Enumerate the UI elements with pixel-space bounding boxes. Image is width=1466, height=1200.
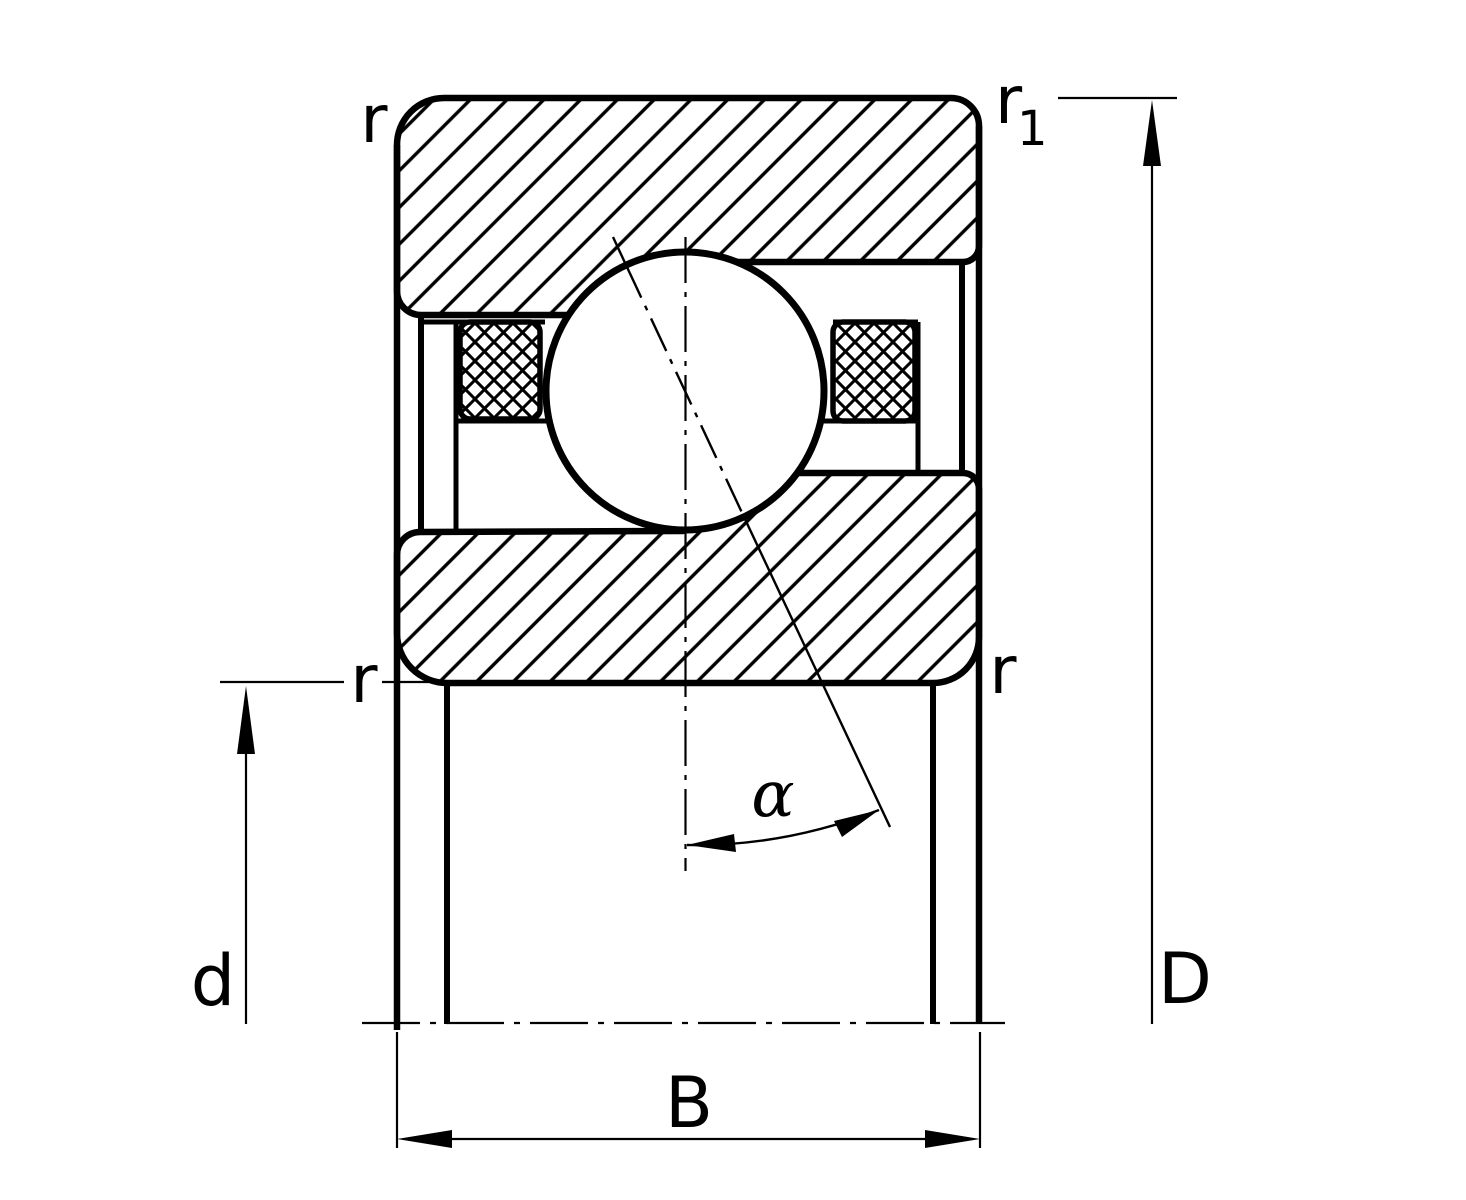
bore-diameter-arrow (237, 686, 255, 754)
cage-section-right (833, 322, 915, 421)
bearing-cross-section-diagram: r r 1 r r d D B α (0, 0, 1466, 1200)
bearing-cross-section-page: r r 1 r r d D B α (0, 0, 1466, 1200)
chamfer-label-top-left: r (360, 81, 388, 158)
width-label: B (665, 1062, 713, 1144)
contact-angle-arrow-right (834, 810, 879, 837)
width-arrow-left (397, 1130, 452, 1148)
contact-angle-arrow-left (687, 834, 736, 852)
cage-section-left (460, 322, 540, 419)
contact-angle-label: α (751, 758, 794, 832)
chamfer-label-top-right-subscript: 1 (1017, 101, 1048, 157)
outside-diameter-label: D (1158, 938, 1212, 1020)
bore-diameter-dimension (220, 682, 344, 1024)
chamfer-label-mid-right: r (989, 632, 1017, 709)
width-arrow-right (925, 1130, 980, 1148)
outside-diameter-dimension (1058, 98, 1177, 1024)
chamfer-label-mid-left: r (350, 641, 378, 718)
bore-diameter-label: d (191, 940, 235, 1022)
outside-diameter-arrow (1143, 100, 1161, 166)
